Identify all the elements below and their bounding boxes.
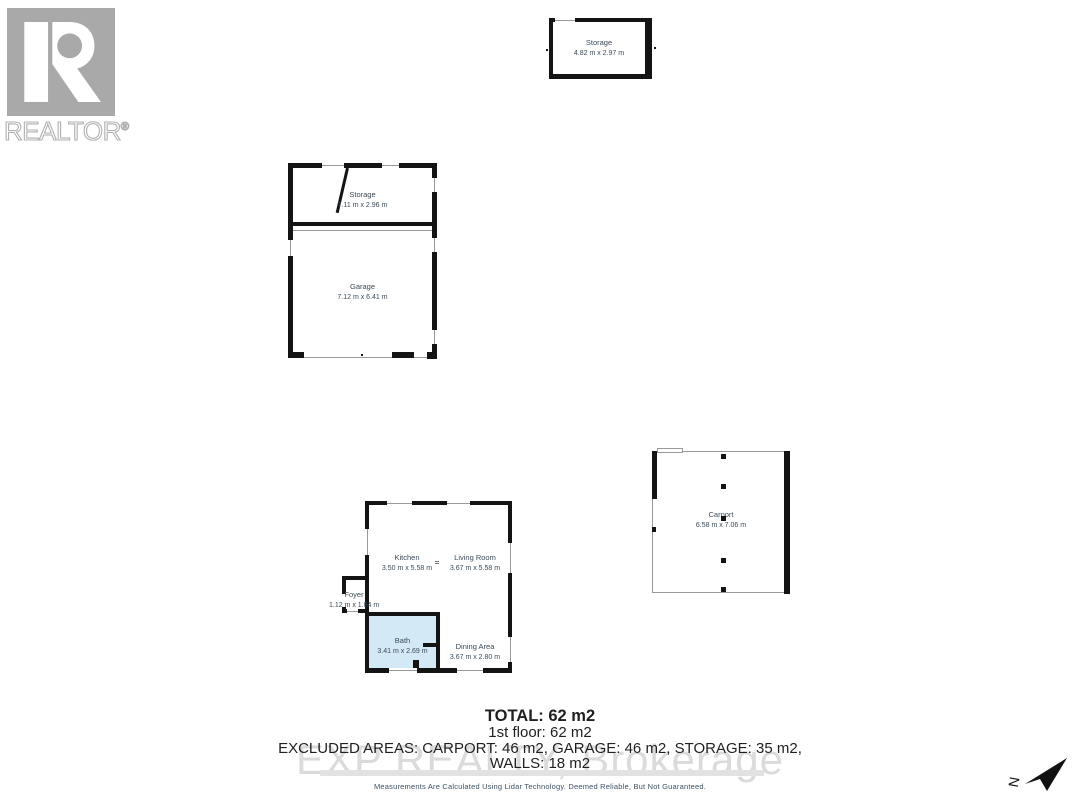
window (382, 163, 399, 168)
room-dimensions: 3.50 m x 5.58 m (377, 564, 437, 573)
walls-area-text: WALLS: 18 m2 (0, 756, 1080, 772)
window (508, 543, 512, 573)
room-label-garage: Garage 7.12 m x 6.41 m (293, 282, 432, 302)
first-floor-area-text: 1st floor: 62 m2 (0, 725, 1080, 741)
carport-post (721, 558, 726, 563)
measurement-disclaimer: Measurements Are Calculated Using Lidar … (0, 782, 1080, 791)
room-label-bath: Bath 3.41 m x 2.69 m (369, 636, 436, 656)
window (555, 18, 575, 22)
first-floor-plan: Bath 3.41 m x 2.69 m Kitchen 3.50 m x 5.… (365, 501, 512, 673)
room-name: Storage (293, 190, 432, 199)
carport-left-wall (652, 451, 657, 499)
carport-post (721, 454, 726, 459)
room-dimensions: 1.12 m x 1.84 m (329, 601, 379, 610)
room-name: Storage (553, 38, 645, 47)
room-name: Bath (369, 636, 436, 645)
wall-corner (288, 352, 304, 358)
room-dimensions: 6.58 m x 7.06 m (653, 521, 789, 530)
room-dimensions: 7.11 m x 2.96 m (293, 201, 432, 210)
carport-post (721, 484, 726, 489)
room-dimensions: 4.82 m x 2.97 m (553, 49, 645, 58)
interior-wall (293, 222, 432, 226)
room-name: Garage (293, 282, 432, 291)
window (432, 238, 437, 252)
room-name: Living Room (445, 553, 505, 562)
room-dimensions: 7.12 m x 6.41 m (293, 293, 432, 302)
realtor-logo-icon (7, 8, 115, 116)
window (432, 178, 437, 192)
room-dimensions: 3.41 m x 2.69 m (369, 647, 436, 656)
wall-corner (427, 352, 437, 359)
carport-post (721, 516, 726, 521)
room-name: Dining Area (445, 642, 505, 651)
garage-building-plan: Storage 7.11 m x 2.96 m Garage 7.12 m x … (288, 163, 437, 357)
floorplan-page: REALTOR® Storage 4.82 m x 2.97 m (0, 0, 1080, 810)
room-label-kitchen: Kitchen 3.50 m x 5.58 m (377, 553, 437, 573)
realtor-text: REALTOR (4, 116, 121, 146)
window (432, 330, 437, 344)
room-label-dining-area: Dining Area 3.67 m x 2.80 m (445, 642, 505, 662)
window (508, 637, 512, 662)
window (322, 163, 344, 168)
room-label-foyer: Foyer 1.12 m x 1.84 m (329, 590, 379, 610)
window (389, 668, 417, 673)
room-label-garage-storage: Storage 7.11 m x 2.96 m (293, 190, 432, 210)
realtor-wordmark: REALTOR® (4, 116, 129, 147)
carport-plan: Carport 6.58 m x 7.06 m (652, 451, 790, 593)
storage-building-plan: Storage 4.82 m x 2.97 m (549, 18, 652, 79)
room-dimensions: 3.67 m x 5.58 m (445, 564, 505, 573)
garage-door-opening-line (288, 357, 437, 358)
total-area-text: TOTAL: 62 m2 (0, 708, 1080, 725)
room-name: Foyer (329, 590, 379, 599)
marker-dot (546, 49, 548, 51)
window (365, 529, 369, 555)
room-name: Kitchen (377, 553, 437, 562)
realtor-logo: REALTOR® (7, 8, 127, 121)
window (457, 668, 483, 673)
area-summary: TOTAL: 62 m2 1st floor: 62 m2 EXCLUDED A… (0, 708, 1080, 772)
room-dimensions: 3.67 m x 2.80 m (445, 653, 505, 662)
window (447, 501, 470, 505)
registered-trademark-symbol: ® (121, 121, 129, 133)
window (387, 501, 412, 505)
carport-step (657, 448, 683, 453)
room-label-storage-building: Storage 4.82 m x 2.97 m (553, 38, 645, 58)
carport-post (721, 587, 726, 592)
excluded-areas-text: EXCLUDED AREAS: CARPORT: 46 m2, GARAGE: … (0, 741, 1080, 757)
wall-stub (413, 660, 419, 668)
interior-wall-line (293, 230, 432, 231)
marker-dot (361, 354, 363, 356)
wall-segment (392, 352, 414, 358)
window (288, 240, 293, 256)
room-label-living-room: Living Room 3.67 m x 5.58 m (445, 553, 505, 573)
marker-dot (654, 47, 656, 49)
bath-room: Bath 3.41 m x 2.69 m (369, 612, 440, 668)
